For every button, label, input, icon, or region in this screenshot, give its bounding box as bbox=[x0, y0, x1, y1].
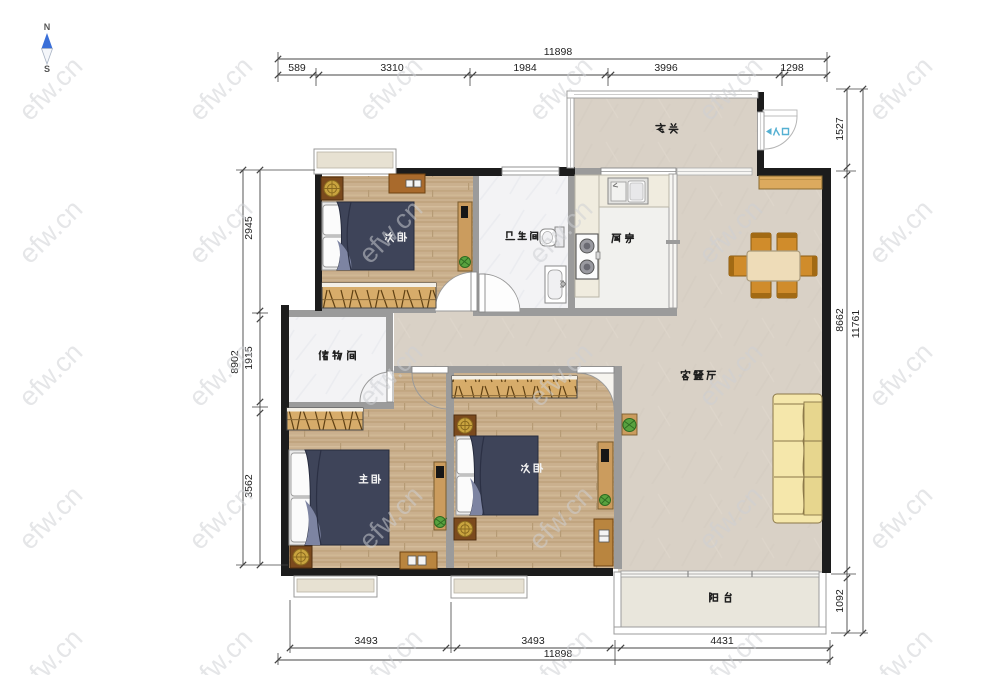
svg-text:efw.cn: efw.cn bbox=[353, 623, 428, 675]
svg-text:efw.cn: efw.cn bbox=[183, 337, 258, 412]
svg-text:1984: 1984 bbox=[513, 62, 537, 74]
svg-text:efw.cn: efw.cn bbox=[523, 623, 598, 675]
svg-text:efw.cn: efw.cn bbox=[863, 623, 938, 675]
svg-text:efw.cn: efw.cn bbox=[13, 337, 88, 412]
svg-text:efw.cn: efw.cn bbox=[13, 51, 88, 126]
svg-text:efw.cn: efw.cn bbox=[13, 480, 88, 555]
svg-text:3493: 3493 bbox=[354, 635, 378, 647]
svg-text:3493: 3493 bbox=[521, 635, 545, 647]
svg-text:11761: 11761 bbox=[850, 310, 862, 339]
svg-text:3996: 3996 bbox=[654, 62, 678, 74]
svg-text:1298: 1298 bbox=[780, 62, 804, 74]
svg-text:efw.cn: efw.cn bbox=[13, 194, 88, 269]
svg-text:N: N bbox=[44, 22, 51, 32]
svg-text:efw.cn: efw.cn bbox=[863, 194, 938, 269]
svg-text:11898: 11898 bbox=[544, 46, 573, 58]
svg-text:efw.cn: efw.cn bbox=[183, 480, 258, 555]
svg-text:efw.cn: efw.cn bbox=[863, 337, 938, 412]
svg-text:8662: 8662 bbox=[834, 308, 846, 332]
svg-text:efw.cn: efw.cn bbox=[863, 51, 938, 126]
svg-text:efw.cn: efw.cn bbox=[183, 623, 258, 675]
svg-text:1527: 1527 bbox=[834, 117, 846, 141]
svg-text:efw.cn: efw.cn bbox=[13, 623, 88, 675]
svg-text:589: 589 bbox=[288, 62, 306, 74]
svg-text:efw.cn: efw.cn bbox=[863, 480, 938, 555]
svg-text:efw.cn: efw.cn bbox=[183, 51, 258, 126]
svg-text:1092: 1092 bbox=[834, 589, 846, 613]
